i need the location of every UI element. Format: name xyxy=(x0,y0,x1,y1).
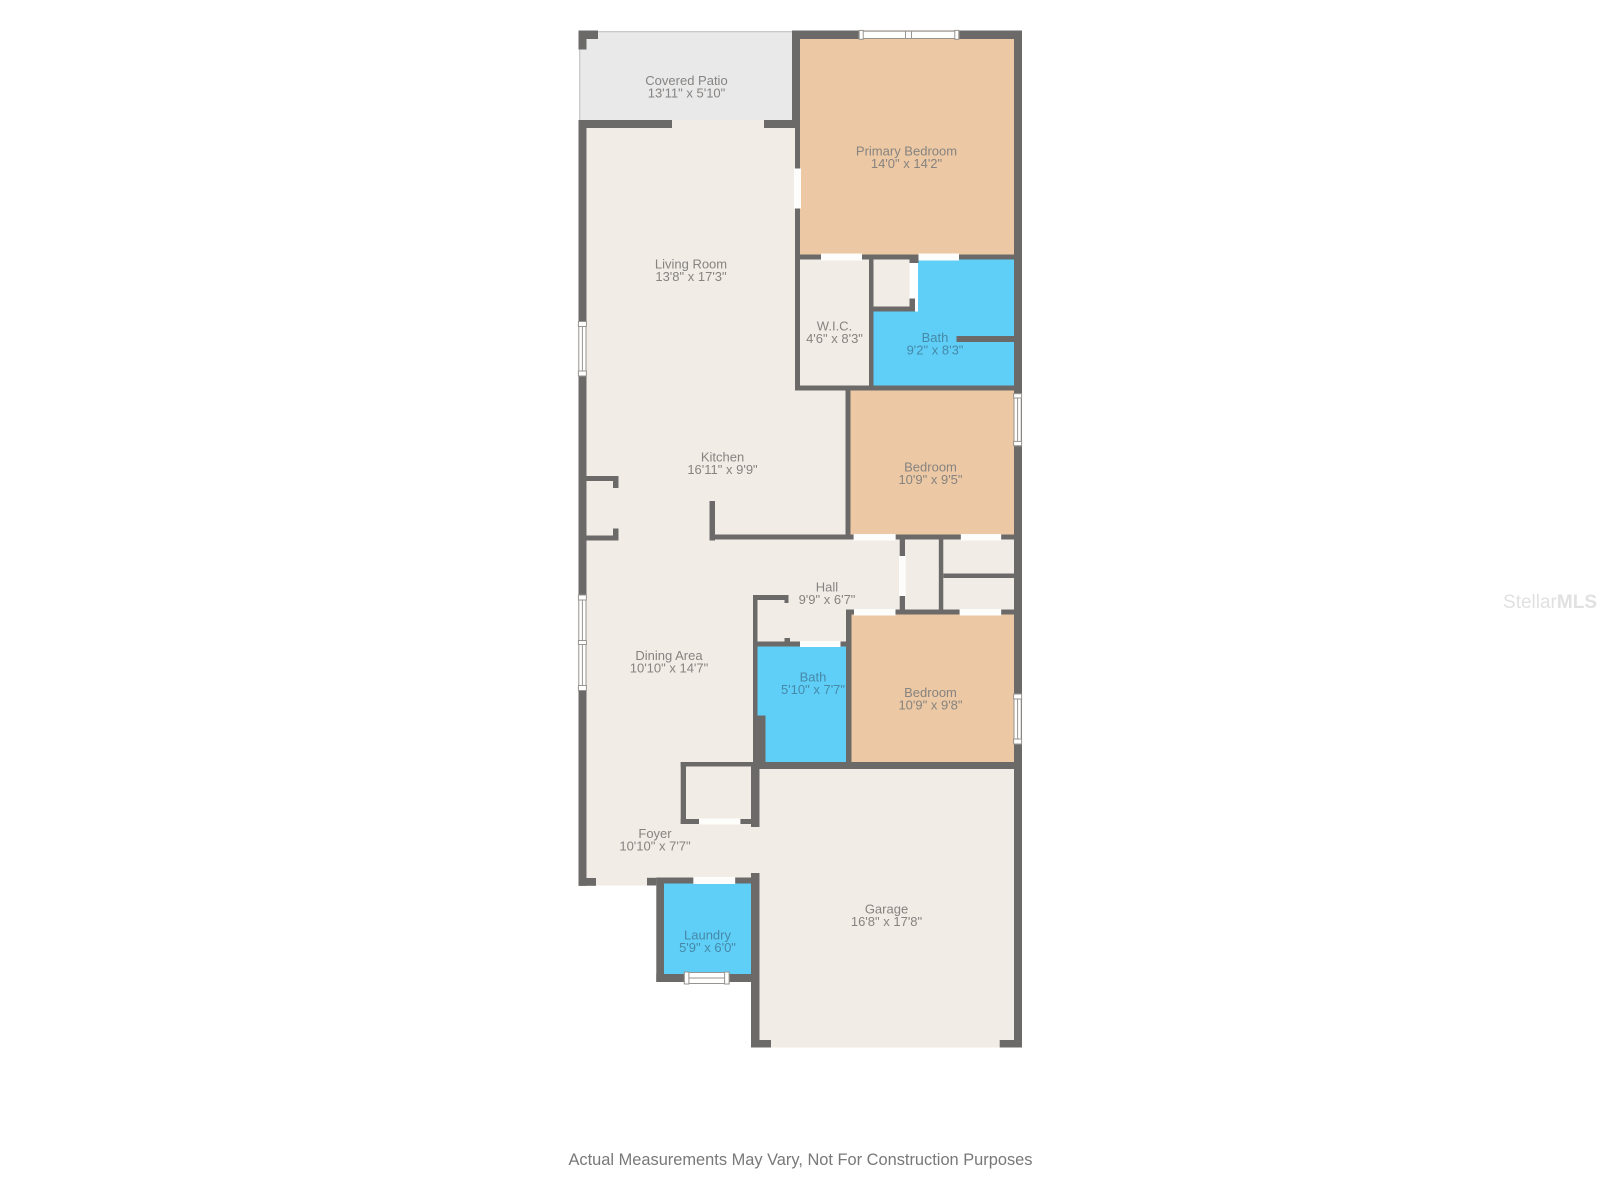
svg-text:9'9" x 6'7": 9'9" x 6'7" xyxy=(799,592,856,607)
svg-text:10'10" x 14'7": 10'10" x 14'7" xyxy=(630,660,709,675)
svg-text:5'9" x 6'0": 5'9" x 6'0" xyxy=(679,940,736,955)
svg-text:10'9" x 9'5": 10'9" x 9'5" xyxy=(898,472,962,487)
svg-text:10'9" x 9'8": 10'9" x 9'8" xyxy=(898,697,962,712)
svg-text:Actual Measurements May Vary,: Actual Measurements May Vary, Not For Co… xyxy=(569,1151,1033,1169)
svg-text:StellarMLS: StellarMLS xyxy=(1503,592,1597,613)
svg-text:13'11" x 5'10": 13'11" x 5'10" xyxy=(648,86,726,101)
svg-text:14'0" x 14'2": 14'0" x 14'2" xyxy=(871,156,943,171)
svg-text:10'10" x 7'7": 10'10" x 7'7" xyxy=(619,839,691,854)
svg-text:13'8" x 17'3": 13'8" x 17'3" xyxy=(655,269,727,284)
svg-text:16'11" x 9'9": 16'11" x 9'9" xyxy=(687,462,758,477)
svg-text:5'10" x 7'7": 5'10" x 7'7" xyxy=(781,682,845,697)
svg-text:9'2" x 8'3": 9'2" x 8'3" xyxy=(907,343,964,358)
svg-text:4'6" x 8'3": 4'6" x 8'3" xyxy=(806,331,863,346)
svg-text:16'8" x 17'8": 16'8" x 17'8" xyxy=(851,914,923,929)
